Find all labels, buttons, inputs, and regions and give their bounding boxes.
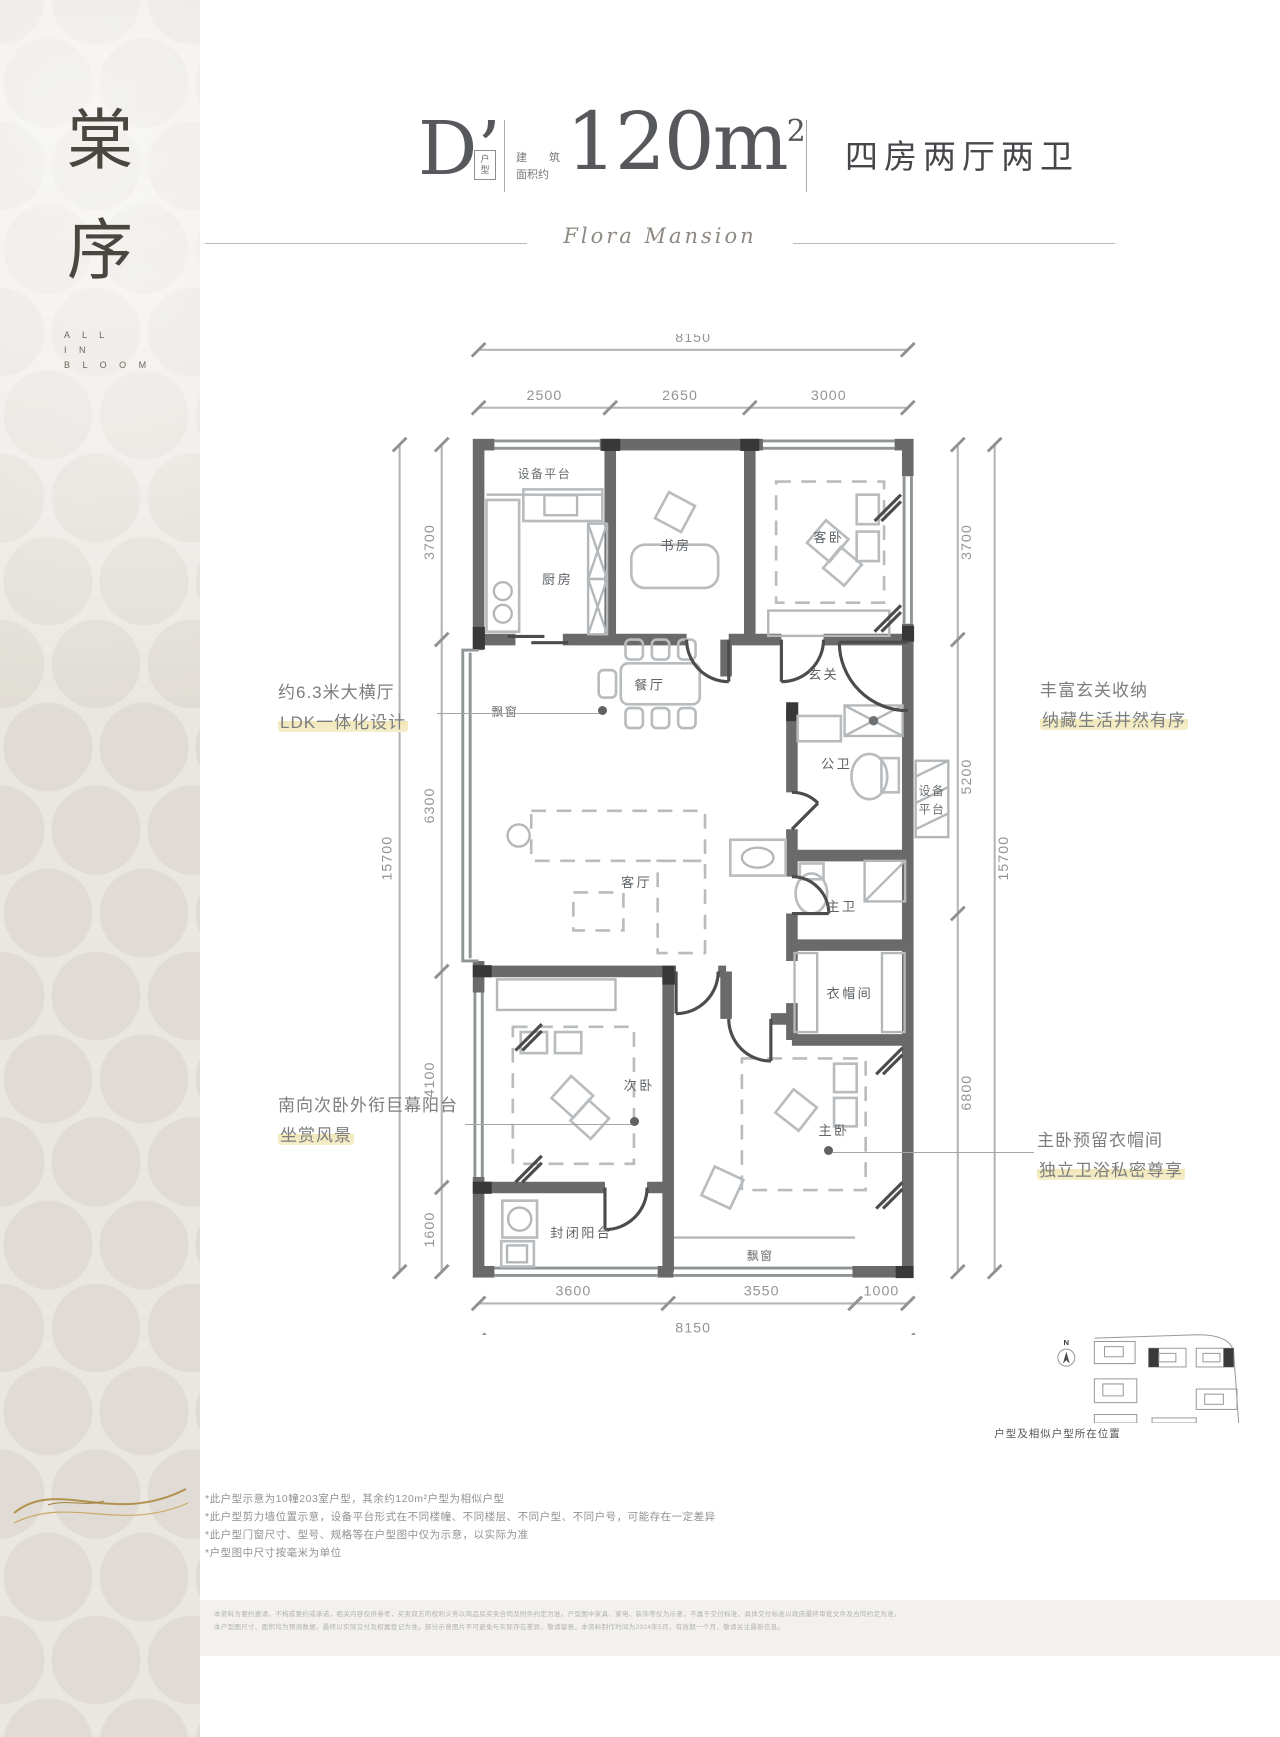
dim-right-seg-3: 6800 [959,1075,975,1111]
poster-canvas: 棠 序 A L L I N B L O O M D’ 户 型 建 筑 面积约 1… [0,0,1280,1737]
brand-line-right [793,243,1115,244]
callout-balcony: 南向次卧外衔巨幕阳台 坐赏风景 [278,1091,458,1151]
motto-line-3: B L O O M [64,358,151,373]
project-title-vertical: 棠 序 [0,108,200,328]
note-4: *户型图中尺寸按毫米为单位 [205,1544,716,1562]
title-char-1: 棠 [0,108,200,174]
unit-tag-char-1: 户 [476,154,494,165]
dim-top-seg-3: 3000 [811,388,847,404]
dim-right-seg-1: 3700 [959,524,975,560]
dim-top-seg-1: 2500 [526,388,562,404]
callout-master: 主卧预留衣帽间 独立卫浴私密尊享 [1037,1126,1185,1186]
area-label: 建 筑 面积约 [516,150,560,184]
floor-plan: 设备平台 厨房 书房 客卧 玄关 餐厅 飘窗 公卫 设备 平台 客厅 主卫 衣帽… [368,334,1021,1335]
dim-bottom-seg-1: 3600 [555,1283,591,1299]
project-motto: A L L I N B L O O M [64,328,151,373]
dim-left-total: 15700 [380,836,396,881]
dim-top-seg-2: 2650 [662,388,698,404]
room-label-equip-right-2: 平台 [919,802,946,816]
room-label-dining: 餐厅 [634,678,665,693]
leader-living [437,713,602,714]
area-label-row2: 面积约 [516,167,560,184]
leader-balcony [465,1124,635,1125]
header-divider-2 [806,120,807,192]
leader-dot-dining [598,706,607,715]
room-label-equip-right-1: 设备 [919,784,946,798]
callout-master-line2: 独立卫浴私密尊享 [1037,1161,1185,1180]
room-label-closed-balcony: 封闭阳台 [550,1226,612,1241]
motto-line-2: I N [64,343,151,358]
area-label-char-1: 建 [516,150,527,167]
room-label-equip-top: 设备平台 [518,467,572,481]
room-label-public-bath: 公卫 [821,757,852,772]
area-value: 120m2 [566,102,806,182]
unit-tag-char-2: 型 [476,165,494,176]
dim-bottom-total: 8150 [675,1320,711,1335]
room-label-foyer: 玄关 [808,666,839,682]
site-plan: N [985,1243,1275,1423]
room-label-cloak: 衣帽间 [827,986,874,1001]
note-2: *此户型剪力墙位置示意，设备平台形式在不同楼幢、不同楼层、不同户型、不同户号，可… [205,1508,716,1526]
room-label-study: 书房 [661,538,692,553]
plan-notes: *此户型示意为10幢203室户型，其余约120m²户型为相似户型 *此户型剪力墙… [205,1490,716,1562]
leader-dot-master-bed [824,1146,833,1155]
dim-left-seg-4: 1600 [422,1212,438,1248]
dim-right-seg-2: 5200 [959,759,975,795]
room-label-master-bed: 主卧 [819,1123,850,1138]
motto-line-1: A L L [64,328,151,343]
footer-line-2: 本户型图尺寸、面积均为预测数据，最终以实际交付及权属登记为准。部分示意图片不可避… [214,1623,1266,1632]
room-label-second-bed: 次卧 [624,1078,655,1093]
sidebar: 棠 序 A L L I N B L O O M [0,0,200,1737]
footer-disclaimer-bar: 本资料为要约邀请，不构成要约或承诺，相关内容仅供参考，买卖双方的权利义务以商品房… [200,1600,1280,1656]
site-plan-caption: 户型及相似户型所在位置 [960,1426,1155,1441]
unit-tag-box: 户 型 [474,150,496,180]
title-char-2: 序 [0,218,200,284]
room-label-bay-left: 飘窗 [491,705,518,719]
footer-line-1: 本资料为要约邀请，不构成要约或承诺，相关内容仅供参考，买卖双方的权利义务以商品房… [214,1610,1266,1619]
dim-bottom-seg-2: 3550 [744,1283,780,1299]
room-label-kitchen: 厨房 [542,572,573,587]
brand-script: Flora Mansion [540,224,780,248]
room-label-living: 客厅 [621,874,652,890]
leader-master [832,1152,1034,1153]
area-label-char-2: 筑 [549,150,560,167]
callout-balcony-line2: 坐赏风景 [278,1126,354,1145]
note-3: *此户型门窗尺寸、型号、规格等在户型图中仅为示意，以实际为准 [205,1526,716,1544]
dim-right-total: 15700 [996,836,1012,881]
callout-balcony-line1: 南向次卧外衔巨幕阳台 [278,1091,458,1121]
callout-foyer-line1: 丰富玄关收纳 [1040,676,1188,706]
callout-living-line2: LDK一体化设计 [278,713,408,732]
room-label-master-bath: 主卫 [826,899,857,914]
area-superscript: 2 [787,114,806,149]
callout-foyer: 丰富玄关收纳 纳藏生活井然有序 [1040,676,1188,736]
header-divider-1 [504,120,505,192]
dim-top-total: 8150 [675,334,711,346]
area-number: 120m [566,95,787,188]
callout-foyer-line2: 纳藏生活井然有序 [1040,711,1188,730]
dim-left-seg-2: 6300 [422,788,438,824]
callout-living-line1: 约6.3米大横厅 [278,678,408,708]
dim-bottom-seg-3: 1000 [864,1283,900,1299]
room-label-bay-bottom: 飘窗 [747,1249,774,1263]
note-1: *此户型示意为10幢203室户型，其余约120m²户型为相似户型 [205,1490,716,1508]
layout-description: 四房两厅两卫 [845,130,1079,178]
gold-wave-decoration [8,1455,192,1541]
callout-master-line1: 主卧预留衣帽间 [1037,1126,1185,1156]
brand-line-left [205,243,527,244]
room-label-guest-bed: 客卧 [813,529,844,545]
compass-n-label: N [1064,1338,1070,1347]
dim-left-seg-1: 3700 [422,524,438,560]
callout-living: 约6.3米大横厅 LDK一体化设计 [278,678,408,738]
leader-dot-second-bed [630,1117,639,1126]
